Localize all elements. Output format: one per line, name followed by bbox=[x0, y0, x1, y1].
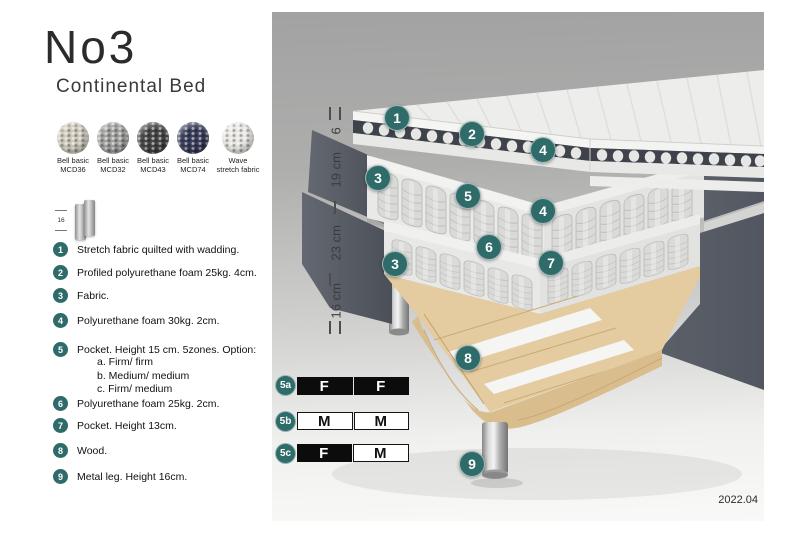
firmness-cell: F bbox=[297, 444, 352, 462]
material-text: Polyurethane foam 25kg. 2cm. bbox=[77, 398, 219, 410]
item-number-badge: 8 bbox=[53, 443, 68, 458]
cutaway-diagram-panel: 6 19 cm 23 cm 16 cm 1 2 4 3 5 4 6 7 3 8 … bbox=[272, 12, 764, 521]
item-number-badge: 2 bbox=[53, 265, 68, 280]
fabric-swatch-wave bbox=[222, 122, 254, 154]
material-item-5: 5 Pocket. Height 15 cm. 5zones. Option: bbox=[53, 342, 256, 357]
callout-3-fabric-upper: 3 bbox=[365, 165, 391, 191]
swatch-label: Wavestretch fabric bbox=[206, 156, 270, 174]
fabric-swatch-mcd32 bbox=[97, 122, 129, 154]
firmness-table-5b: M M bbox=[297, 412, 409, 430]
version-label: 2022.04 bbox=[718, 494, 758, 506]
callout-5-pocket-springs: 5 bbox=[455, 183, 481, 209]
callout-6-base-foam: 6 bbox=[476, 234, 502, 260]
pocket-firmness-options: a. Firm/ firm b. Medium/ medium c. Firm/… bbox=[97, 356, 189, 397]
dimension-tick bbox=[329, 321, 331, 334]
callout-4-foam-upper: 4 bbox=[530, 137, 556, 163]
item-number-badge: 3 bbox=[53, 288, 68, 303]
material-item-9: 9 Metal leg. Height 16cm. bbox=[53, 469, 187, 484]
firmness-cell: M bbox=[297, 412, 353, 430]
fabric-swatch-mcd74 bbox=[177, 122, 209, 154]
firmness-cell: M bbox=[354, 412, 410, 430]
firmness-badge-5c: 5c bbox=[275, 443, 296, 464]
item-number-badge: 7 bbox=[53, 418, 68, 433]
firmness-cell: F bbox=[297, 377, 353, 395]
dimension-tick bbox=[339, 321, 341, 334]
dimension-label-base: 23 cm bbox=[329, 221, 344, 261]
material-text: Metal leg. Height 16cm. bbox=[77, 471, 187, 483]
callout-7-base-pocket: 7 bbox=[538, 250, 564, 276]
material-text: Stretch fabric quilted with wadding. bbox=[77, 244, 239, 256]
leg-cylinder-icon bbox=[84, 200, 95, 236]
material-item-7: 7 Pocket. Height 13cm. bbox=[53, 418, 177, 433]
item-number-badge: 6 bbox=[53, 396, 68, 411]
item-number-badge: 9 bbox=[53, 469, 68, 484]
callout-8-wood: 8 bbox=[455, 345, 481, 371]
material-item-6: 6 Polyurethane foam 25kg. 2cm. bbox=[53, 396, 219, 411]
page-subtitle: Continental Bed bbox=[56, 76, 206, 98]
dimension-label-leg: 16 cm bbox=[329, 279, 344, 319]
fabric-swatch-mcd36 bbox=[57, 122, 89, 154]
callout-2-profiled-foam: 2 bbox=[459, 121, 485, 147]
material-text: Wood. bbox=[77, 445, 107, 457]
firmness-table-5a: F F bbox=[297, 377, 409, 395]
material-text: Pocket. Height 15 cm. 5zones. Option: bbox=[77, 344, 256, 356]
firmness-cell: F bbox=[354, 377, 410, 395]
callout-1-stretch-fabric: 1 bbox=[384, 105, 410, 131]
material-text: Polyurethane foam 30kg. 2cm. bbox=[77, 315, 219, 327]
material-item-1: 1 Stretch fabric quilted with wadding. bbox=[53, 242, 239, 257]
dimension-tick bbox=[334, 201, 336, 214]
firmness-cell: M bbox=[353, 444, 410, 462]
material-item-2: 2 Profiled polyurethane foam 25kg. 4cm. bbox=[53, 265, 257, 280]
spec-sheet: { "header": { "title": "No3", "subtitle"… bbox=[0, 0, 800, 533]
firmness-table-5c: F M bbox=[297, 444, 409, 462]
page-title: No3 bbox=[44, 20, 137, 74]
material-text: Fabric. bbox=[77, 290, 109, 302]
item-number-badge: 4 bbox=[53, 313, 68, 328]
callout-3-fabric-lower: 3 bbox=[382, 251, 408, 277]
firmness-badge-5b: 5b bbox=[275, 411, 296, 432]
material-item-4: 4 Polyurethane foam 30kg. 2cm. bbox=[53, 313, 219, 328]
material-text: Pocket. Height 13cm. bbox=[77, 420, 177, 432]
callout-9-metal-leg: 9 bbox=[459, 451, 485, 477]
item-number-badge: 1 bbox=[53, 242, 68, 257]
leg-height-dimension: 16 bbox=[55, 210, 67, 231]
material-item-8: 8 Wood. bbox=[53, 443, 107, 458]
material-item-3: 3 Fabric. bbox=[53, 288, 109, 303]
callout-4-foam-lower: 4 bbox=[530, 198, 556, 224]
dimension-label-topper: 6 bbox=[329, 119, 344, 135]
firmness-badge-5a: 5a bbox=[275, 375, 296, 396]
material-text: Profiled polyurethane foam 25kg. 4cm. bbox=[77, 267, 257, 279]
fabric-swatch-mcd43 bbox=[137, 122, 169, 154]
dimension-label-mattress: 19 cm bbox=[329, 148, 344, 188]
item-number-badge: 5 bbox=[53, 342, 68, 357]
